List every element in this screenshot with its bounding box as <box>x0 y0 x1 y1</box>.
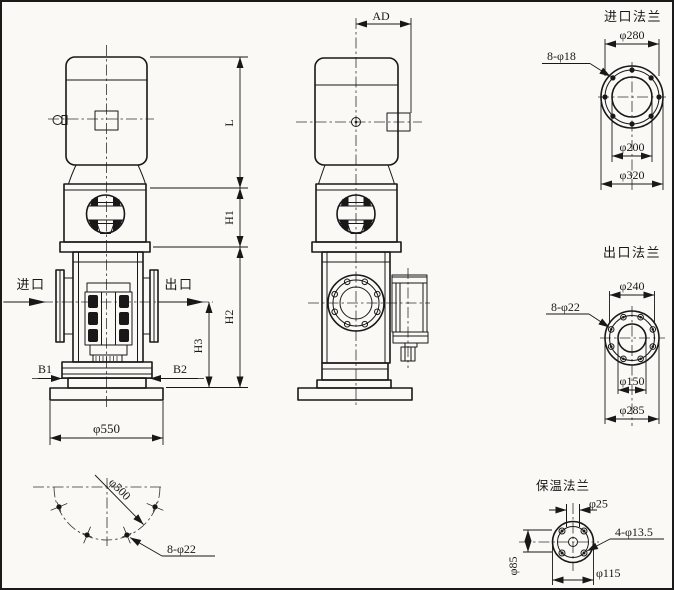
b2-label: B2 <box>173 362 187 376</box>
inlet-flow-arrow <box>4 298 46 306</box>
foundation-bolt-dim: B1 B2 <box>32 362 204 379</box>
insulation-pipe-label: φ25 <box>589 497 608 511</box>
drawing-sheet: 进口 出口 B1 B2 φ550 <box>0 0 674 590</box>
base-diameter-dim: φ550 <box>50 401 163 445</box>
base-bolt-hole <box>145 499 165 515</box>
dim-h1-label: H1 <box>222 210 236 225</box>
motor-adapter-side <box>319 165 395 184</box>
sight-window-front <box>87 195 125 234</box>
side-attachment <box>392 275 428 361</box>
shaft-stub <box>93 355 122 362</box>
pump-base-side <box>298 363 412 400</box>
dim-l-label: L <box>222 119 236 126</box>
b1-label: B1 <box>38 362 52 376</box>
inlet-flange-dims: φ280 8-φ18 φ200 φ320 <box>542 28 663 190</box>
coupling-housing-front <box>60 184 150 252</box>
outlet-holes-label: 8-φ22 <box>551 300 580 314</box>
base-holes-label: 8-φ22 <box>167 542 196 556</box>
inlet-nozzle <box>56 270 73 342</box>
base-bolt-circle-label: φ500 <box>106 475 134 503</box>
dim-h3-label: H3 <box>191 339 205 354</box>
insulation-vertical-label: φ85 <box>506 557 520 576</box>
base-bolt-view: φ500 8-φ22 <box>33 475 215 556</box>
base-bolt-hole <box>49 499 69 515</box>
inlet-flange-title: 进口法兰 <box>604 9 662 24</box>
outlet-outer-label: φ285 <box>620 403 645 417</box>
outlet-bore-label: φ150 <box>620 374 645 388</box>
base-bolt-hole <box>79 525 95 545</box>
inlet-bore-label: φ200 <box>620 140 645 154</box>
inlet-bolt-circle-label: φ280 <box>620 28 645 42</box>
outlet-label: 出口 <box>164 277 193 292</box>
pump-engineering-drawing: 进口 出口 B1 B2 φ550 <box>0 0 674 590</box>
front-view: 进口 出口 B1 B2 φ550 <box>3 45 248 445</box>
coupling-housing-side <box>312 184 401 252</box>
ad-dimension: AD <box>356 9 411 113</box>
insulation-flange-dims: φ25 4-φ13.5 φ85 φ115 <box>506 497 664 586</box>
inlet-holes-label: 8-φ18 <box>547 49 576 63</box>
insulation-flange-title: 保温法兰 <box>536 479 590 493</box>
dim-h2-label: H2 <box>222 310 236 325</box>
outlet-flange-detail: 出口法兰 φ240 8-φ22 φ150 <box>546 245 665 426</box>
base-bolt-hole <box>119 525 135 545</box>
outlet-nozzle <box>143 270 158 342</box>
screw-cartridge <box>85 283 132 362</box>
outlet-flange-title: 出口法兰 <box>603 245 661 260</box>
motor-front <box>53 57 147 165</box>
inlet-label: 进口 <box>16 277 45 292</box>
side-view: AD <box>296 9 430 405</box>
insulation-flange-detail: 保温法兰 φ25 4-φ13.5 φ85 φ115 <box>506 479 664 585</box>
height-dimensions: L H1 H2 H3 <box>150 57 248 388</box>
outlet-flow-arrow <box>158 298 204 306</box>
outlet-flange-dims: φ240 8-φ22 φ150 φ285 <box>546 279 659 424</box>
eye-bolt <box>53 116 62 125</box>
dim-ad-label: AD <box>372 9 390 23</box>
insulation-outer-label: φ115 <box>596 566 620 580</box>
insulation-holes-label: 4-φ13.5 <box>615 525 653 539</box>
inlet-outer-label: φ320 <box>620 168 645 182</box>
inlet-flange-detail: 进口法兰 φ280 8-φ18 φ200 φ320 <box>542 9 666 190</box>
motor-adapter <box>69 165 146 184</box>
base-diameter-label: φ550 <box>93 421 120 436</box>
motor-side <box>315 58 410 165</box>
outlet-bolt-circle-label: φ240 <box>620 279 645 293</box>
base-plate-side <box>298 388 412 400</box>
